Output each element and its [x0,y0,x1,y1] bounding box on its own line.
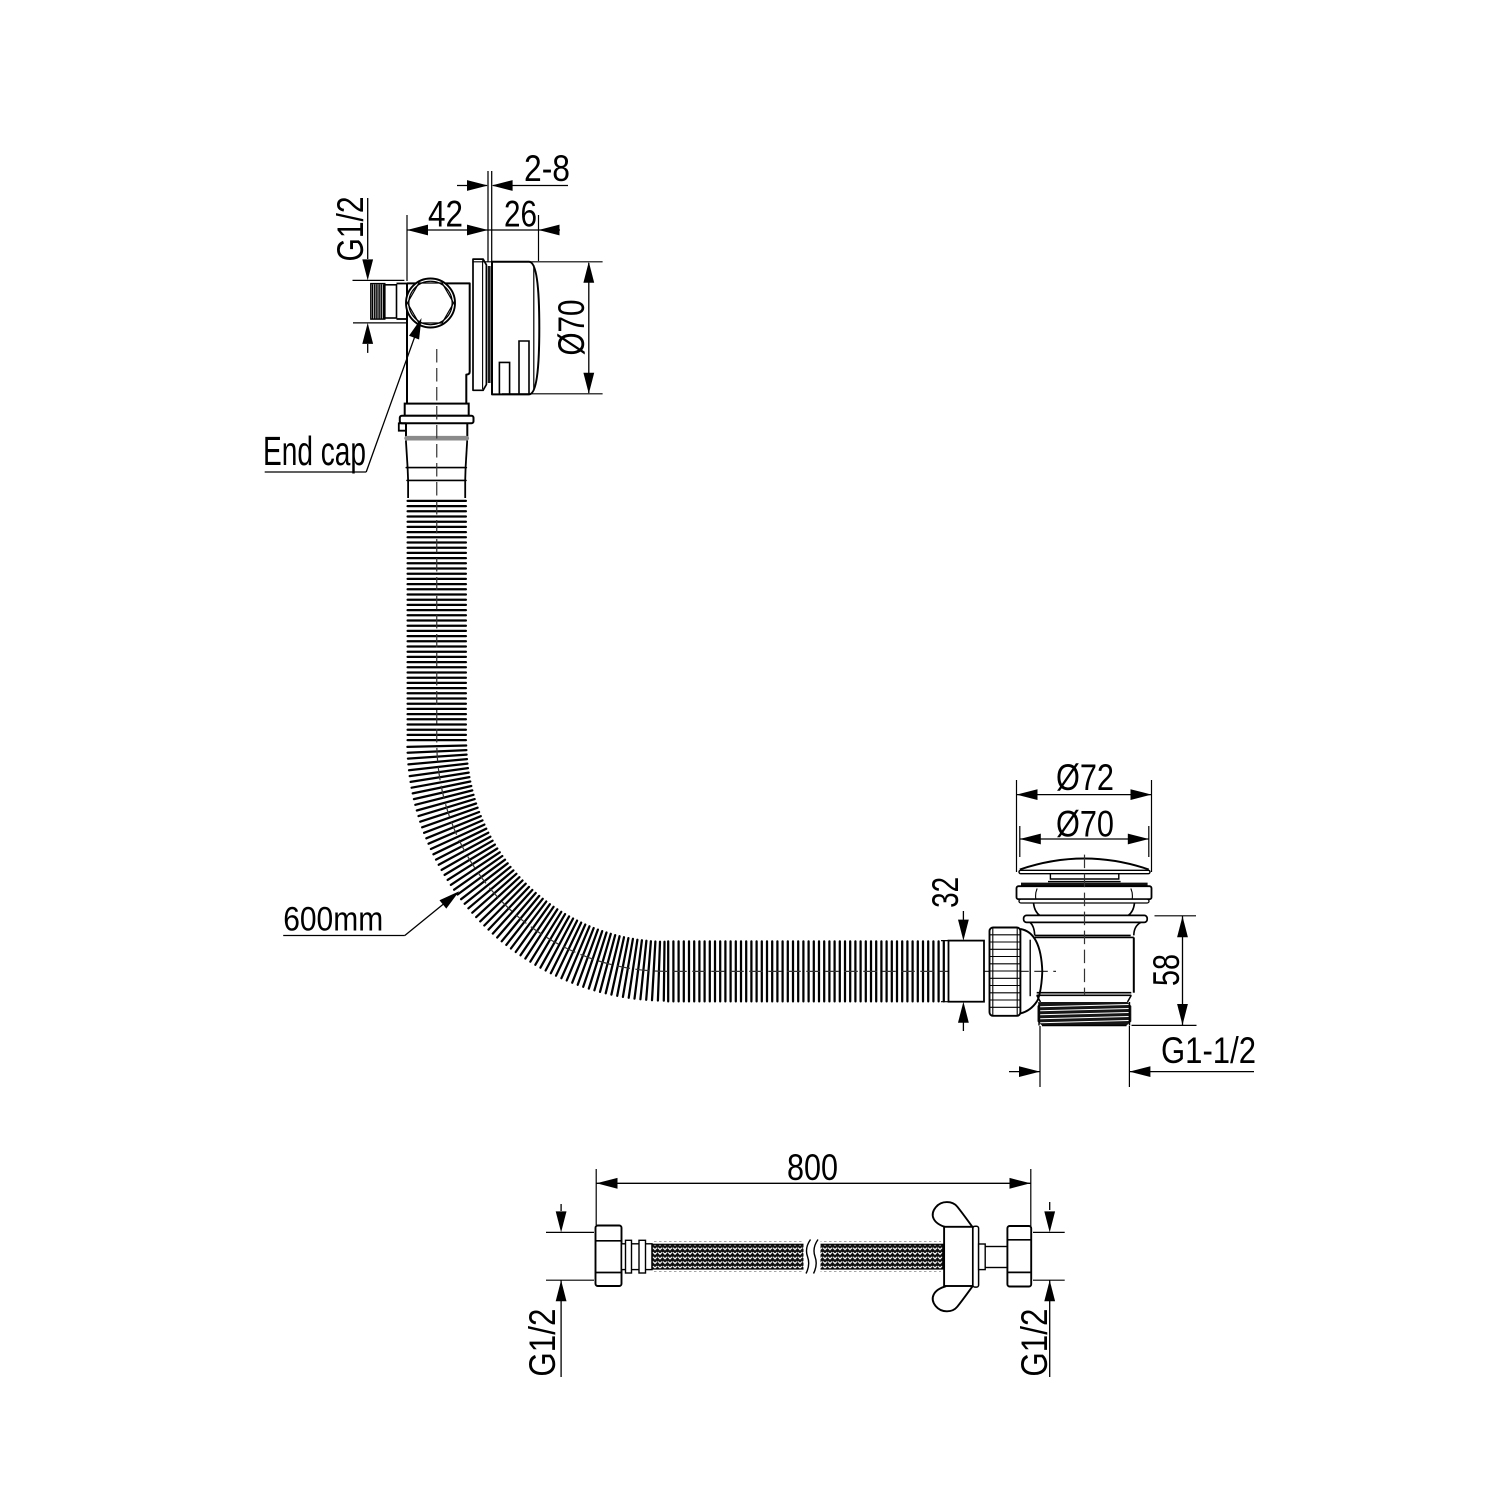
svg-text:End cap: End cap [263,428,366,474]
svg-text:58: 58 [1145,954,1187,986]
svg-text:G1/2: G1/2 [1013,1309,1055,1377]
svg-text:Ø72: Ø72 [1056,756,1114,798]
svg-text:G1-1/2: G1-1/2 [1161,1029,1256,1071]
svg-text:2-8: 2-8 [524,147,570,189]
svg-text:600mm: 600mm [283,900,383,938]
svg-text:Ø70: Ø70 [550,300,592,356]
svg-text:800: 800 [787,1146,838,1188]
svg-text:Ø70: Ø70 [1056,803,1114,845]
svg-text:26: 26 [504,193,537,235]
svg-text:G1/2: G1/2 [329,197,371,262]
svg-text:G1/2: G1/2 [521,1309,563,1377]
svg-text:32: 32 [924,877,966,908]
svg-text:42: 42 [428,193,463,235]
